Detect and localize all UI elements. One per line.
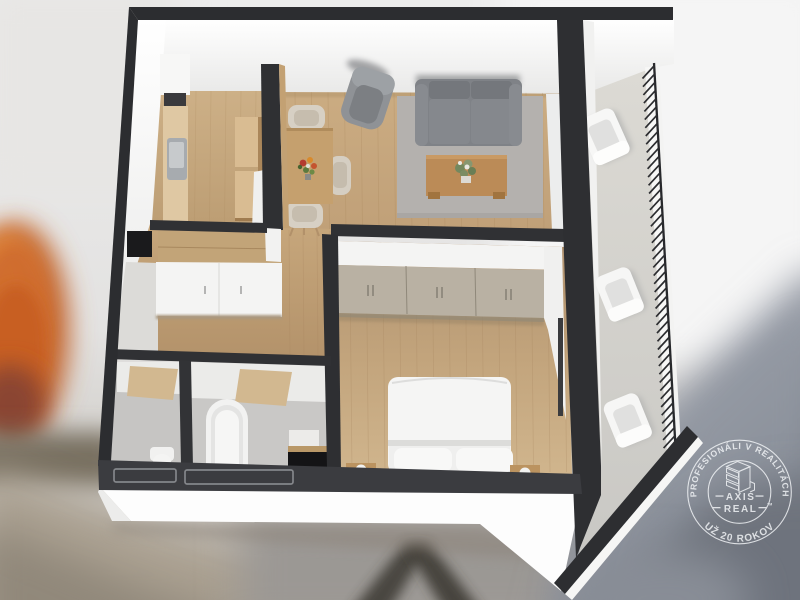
svg-text:REAL: REAL	[724, 504, 758, 515]
svg-text:AXIS: AXIS	[726, 492, 756, 503]
svg-text:TM: TM	[767, 503, 772, 507]
